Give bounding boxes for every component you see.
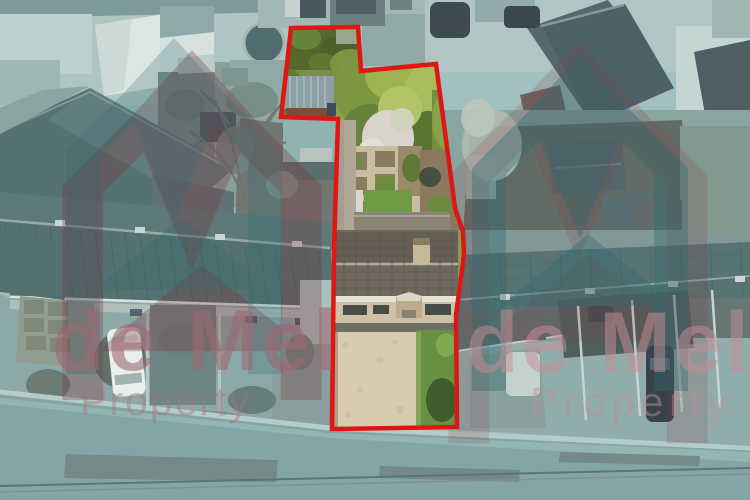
svg-text:de Mel: de Mel	[466, 295, 750, 391]
svg-text:Property: Property	[80, 378, 251, 424]
svg-text:Property: Property	[530, 379, 733, 425]
svg-text:de Mel: de Mel	[52, 293, 341, 389]
